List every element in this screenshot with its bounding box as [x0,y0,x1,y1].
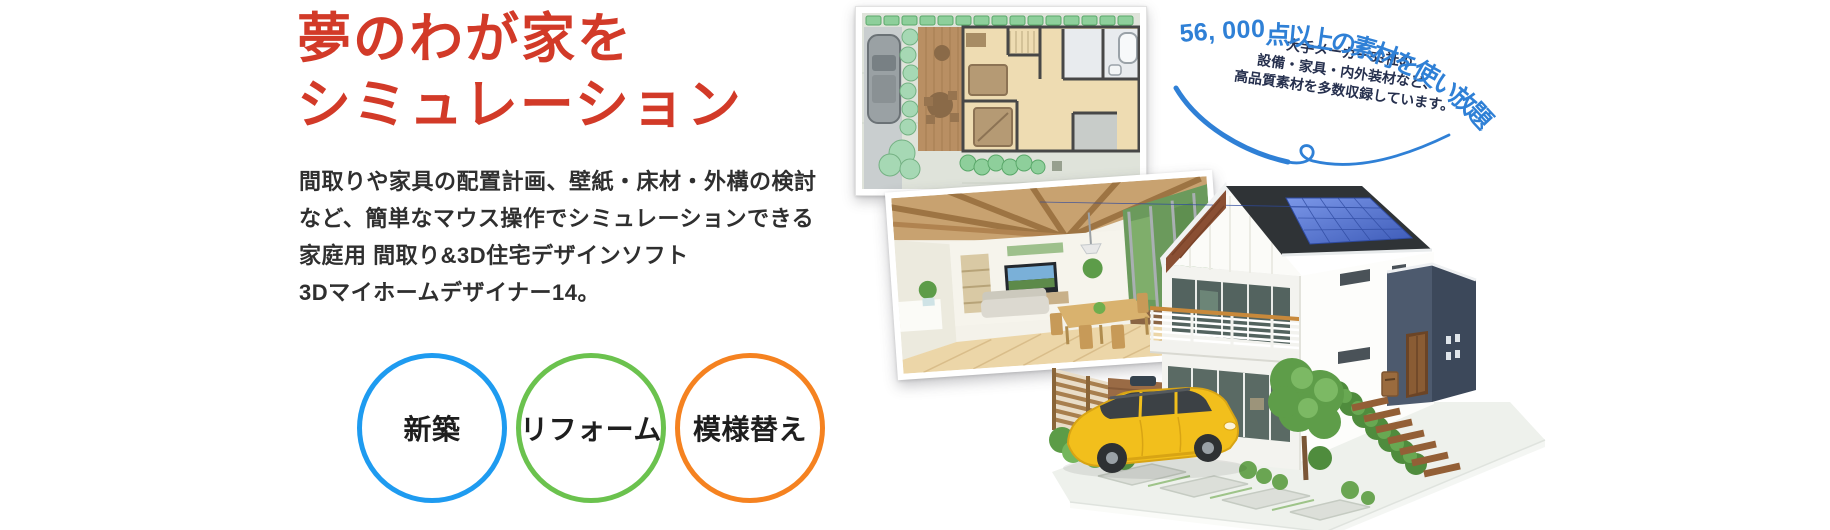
badge-moyougae: 模様替え [675,353,825,503]
front-door [1406,331,1428,398]
entrance-tower [1382,264,1476,406]
plan-car [868,35,900,123]
badge-reform: リフォーム [516,353,666,503]
badge-label: 模様替え [693,408,807,448]
arc-character: 6 [1193,18,1209,48]
page-title: 夢のわが家を シミュレーション [297,6,743,138]
description-line: 間取りや家具の配置計画、壁紙・床材・外構の検討 [299,163,817,200]
description-line: など、簡単なマウス操作でシミュレーションできる [299,200,817,237]
plan-deck [918,27,963,151]
hero-banner: 夢のわが家を シミュレーション 間取りや家具の配置計画、壁紙・床材・外構の検討 … [0,0,1830,530]
arc-character: 5 [1178,19,1194,49]
badge-label: 新築 [403,408,460,448]
arc-character: , [1207,17,1216,46]
hedge-row [866,16,1133,25]
arc-character: 題 [1459,94,1502,137]
description-line: 家庭用 間取り&3D住宅デザインソフト [299,237,817,274]
badge-label: リフォーム [520,408,662,448]
page-title-line1: 夢のわが家を [297,6,743,72]
badge-shinchiku: 新築 [357,353,507,503]
house-exterior-illustration [1040,140,1600,530]
mailbox [1382,372,1398,396]
page-title-line2: シミュレーション [297,72,743,138]
plan-rooms [963,27,1139,151]
description-line: 3Dマイホームデザイナー14。 [299,274,817,311]
product-description: 間取りや家具の配置計画、壁紙・床材・外構の検討 など、簡単なマウス操作でシミュレ… [299,163,817,311]
